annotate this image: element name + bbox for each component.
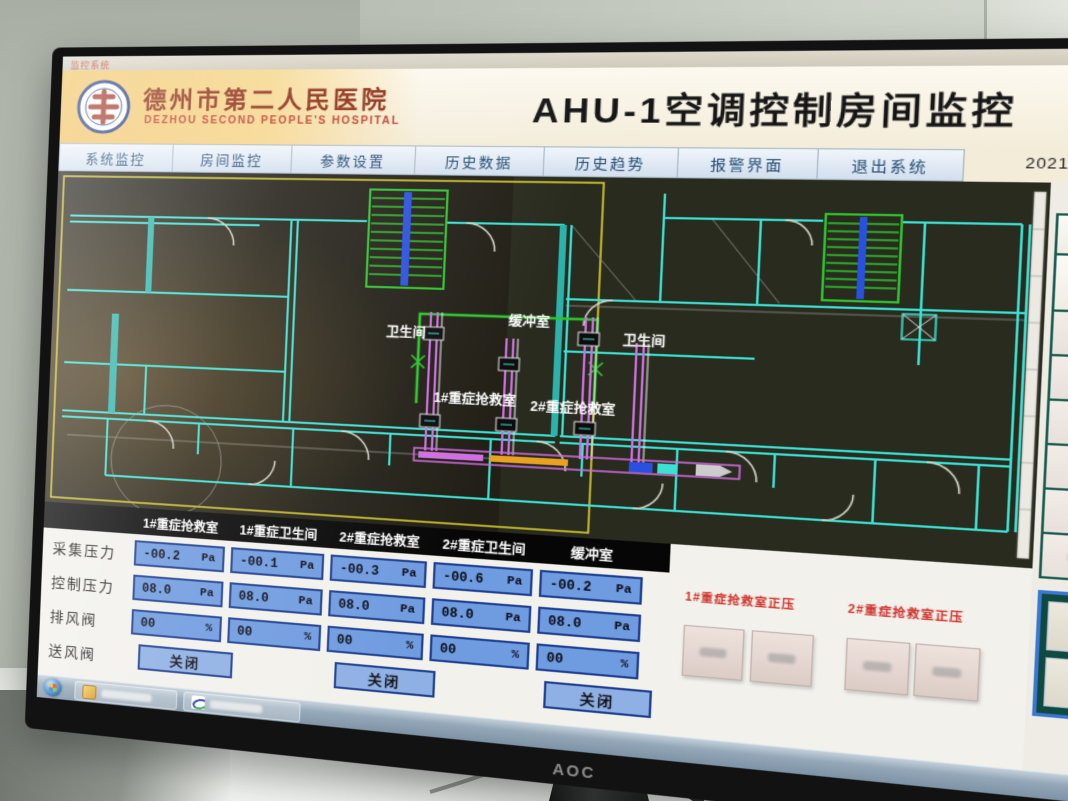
row-label-collected-pressure: 采集压力 [52, 538, 132, 564]
datetime: 2021/1/14 8:58:22 [1025, 154, 1068, 173]
supply-valve-button-icu1[interactable]: 关闭 [138, 644, 233, 678]
sidebar-ahu-button-3[interactable] [1048, 401, 1068, 451]
exhaust-valve-buffer: 00% [536, 643, 640, 679]
exhaust-valve-icu1: 00% [131, 609, 222, 642]
hospital-name: 德州市第二人民医院 [142, 79, 390, 115]
collected-pressure-toilet2: -00.6Pa [432, 562, 533, 596]
floorplan-label-toilet-right: 卫生间 [622, 333, 666, 350]
collected-pressure-buffer: -00.2Pa [539, 570, 643, 605]
tab-room-monitor[interactable]: 房间监控 [173, 144, 293, 174]
tab-parameter-settings[interactable]: 参数设置 [291, 145, 416, 176]
folder-window-icon [82, 684, 96, 699]
floorplan-canvas: 卫生间 缓冲室 卫生间 1#重症抢救室 2#重症抢救室 [45, 171, 1051, 568]
tab-system-monitor[interactable]: 系统监控 [58, 143, 173, 172]
tab-history-data[interactable]: 历史数据 [415, 145, 545, 176]
hospital-name-en: DEZHOU SECOND PEOPLE'S HOSPITAL [144, 115, 400, 127]
kingview-eye-icon [191, 695, 205, 710]
supply-valve-button-icu2[interactable]: 关闭 [334, 662, 436, 698]
icu2-pressure-mode-button-2[interactable] [913, 643, 981, 701]
tab-history-trend[interactable]: 历史趋势 [544, 146, 679, 178]
date-text: 2021/1/14 [1025, 154, 1068, 172]
exhaust-valve-icu2: 00% [327, 626, 424, 661]
collected-pressure-icu2: -00.3Pa [330, 554, 427, 588]
sidebar-ahu-button-1[interactable] [1052, 312, 1068, 360]
hospital-logo-block: 德州市第二人民医院 DEZHOU SECOND PEOPLE'S HOSPITA… [59, 69, 422, 146]
floorplan-label-toilet-left: 卫生间 [386, 324, 426, 340]
row-label-control-pressure: 控制压力 [51, 572, 131, 599]
photo-scene: 监控系统 德州市第二人民医院 DEZHOU SECOND PEOPLE'S HO… [0, 0, 1068, 801]
icu1-pressure-mode-button-2[interactable] [750, 630, 814, 687]
hospital-logo-icon [76, 79, 132, 134]
control-pressure-icu1: 08.0Pa [132, 575, 223, 608]
plan-and-table-column: 卫生间 缓冲室 卫生间 1#重症抢救室 2#重症抢救室 [38, 171, 1051, 771]
icu1-pressure-mode-button-1[interactable] [682, 625, 745, 681]
sidebar-panel-button-1[interactable] [1046, 601, 1068, 661]
control-pressure-toilet2: 08.0Pa [431, 598, 532, 633]
exhaust-valve-toilet1: 00% [227, 617, 321, 651]
sidebar-menu-title[interactable]: 系统菜单 [1057, 216, 1068, 257]
monitor: 监控系统 德州市第二人民医院 DEZHOU SECOND PEOPLE'S HO… [25, 36, 1068, 801]
sidebar-ahu-button-2[interactable] [1050, 356, 1068, 405]
control-pressure-icu2: 08.0Pa [328, 590, 425, 624]
icu2-pressure-mode-button-1[interactable] [844, 638, 910, 696]
sidebar-panel-button-2[interactable] [1043, 657, 1068, 718]
control-pressure-buffer: 08.0Pa [537, 607, 641, 643]
collected-pressure-toilet1: -00.1Pa [230, 547, 324, 580]
taskbar-item-label-smudge [101, 689, 152, 702]
control-pressure-toilet1: 08.0Pa [229, 582, 323, 615]
row-label-exhaust-valve: 排风阀 [49, 606, 129, 633]
sidebar-login-user-button[interactable]: 登录用户 [1054, 255, 1068, 313]
screen: 监控系统 德州市第二人民医院 DEZHOU SECOND PEOPLE'S HO… [37, 47, 1068, 801]
tab-exit-system[interactable]: 退出系统 [818, 148, 965, 181]
page-title: AHU-1空调控制房间监控 [437, 81, 1068, 136]
sidebar-ahu-button-6[interactable] [1041, 534, 1068, 586]
sidebar-ahu-button-4[interactable] [1046, 445, 1068, 496]
floorplan-panel: 卫生间 缓冲室 卫生间 1#重症抢救室 2#重症抢救室 [45, 171, 1051, 568]
sidebar-bottom-panel [1032, 590, 1068, 730]
icu2-positive-pressure-label: 2#重症抢救室正压 [848, 599, 965, 625]
taskbar-item-label-smudge [210, 700, 263, 713]
floorplan-label-buffer-room: 缓冲室 [508, 313, 550, 330]
page-header: 德州市第二人民医院 DEZHOU SECOND PEOPLE'S HOSPITA… [59, 64, 1068, 152]
exhaust-valve-toilet2: 00% [429, 634, 530, 669]
windows-start-button[interactable] [44, 678, 62, 698]
row-label-supply-valve: 送风阀 [48, 640, 128, 667]
icu1-positive-pressure-label: 1#重症抢救室正压 [685, 587, 796, 612]
tab-alarm-screen[interactable]: 报警界面 [678, 147, 819, 180]
supply-valve-button-buffer[interactable]: 关闭 [543, 681, 652, 718]
collected-pressure-icu1: -00.2Pa [134, 540, 225, 572]
